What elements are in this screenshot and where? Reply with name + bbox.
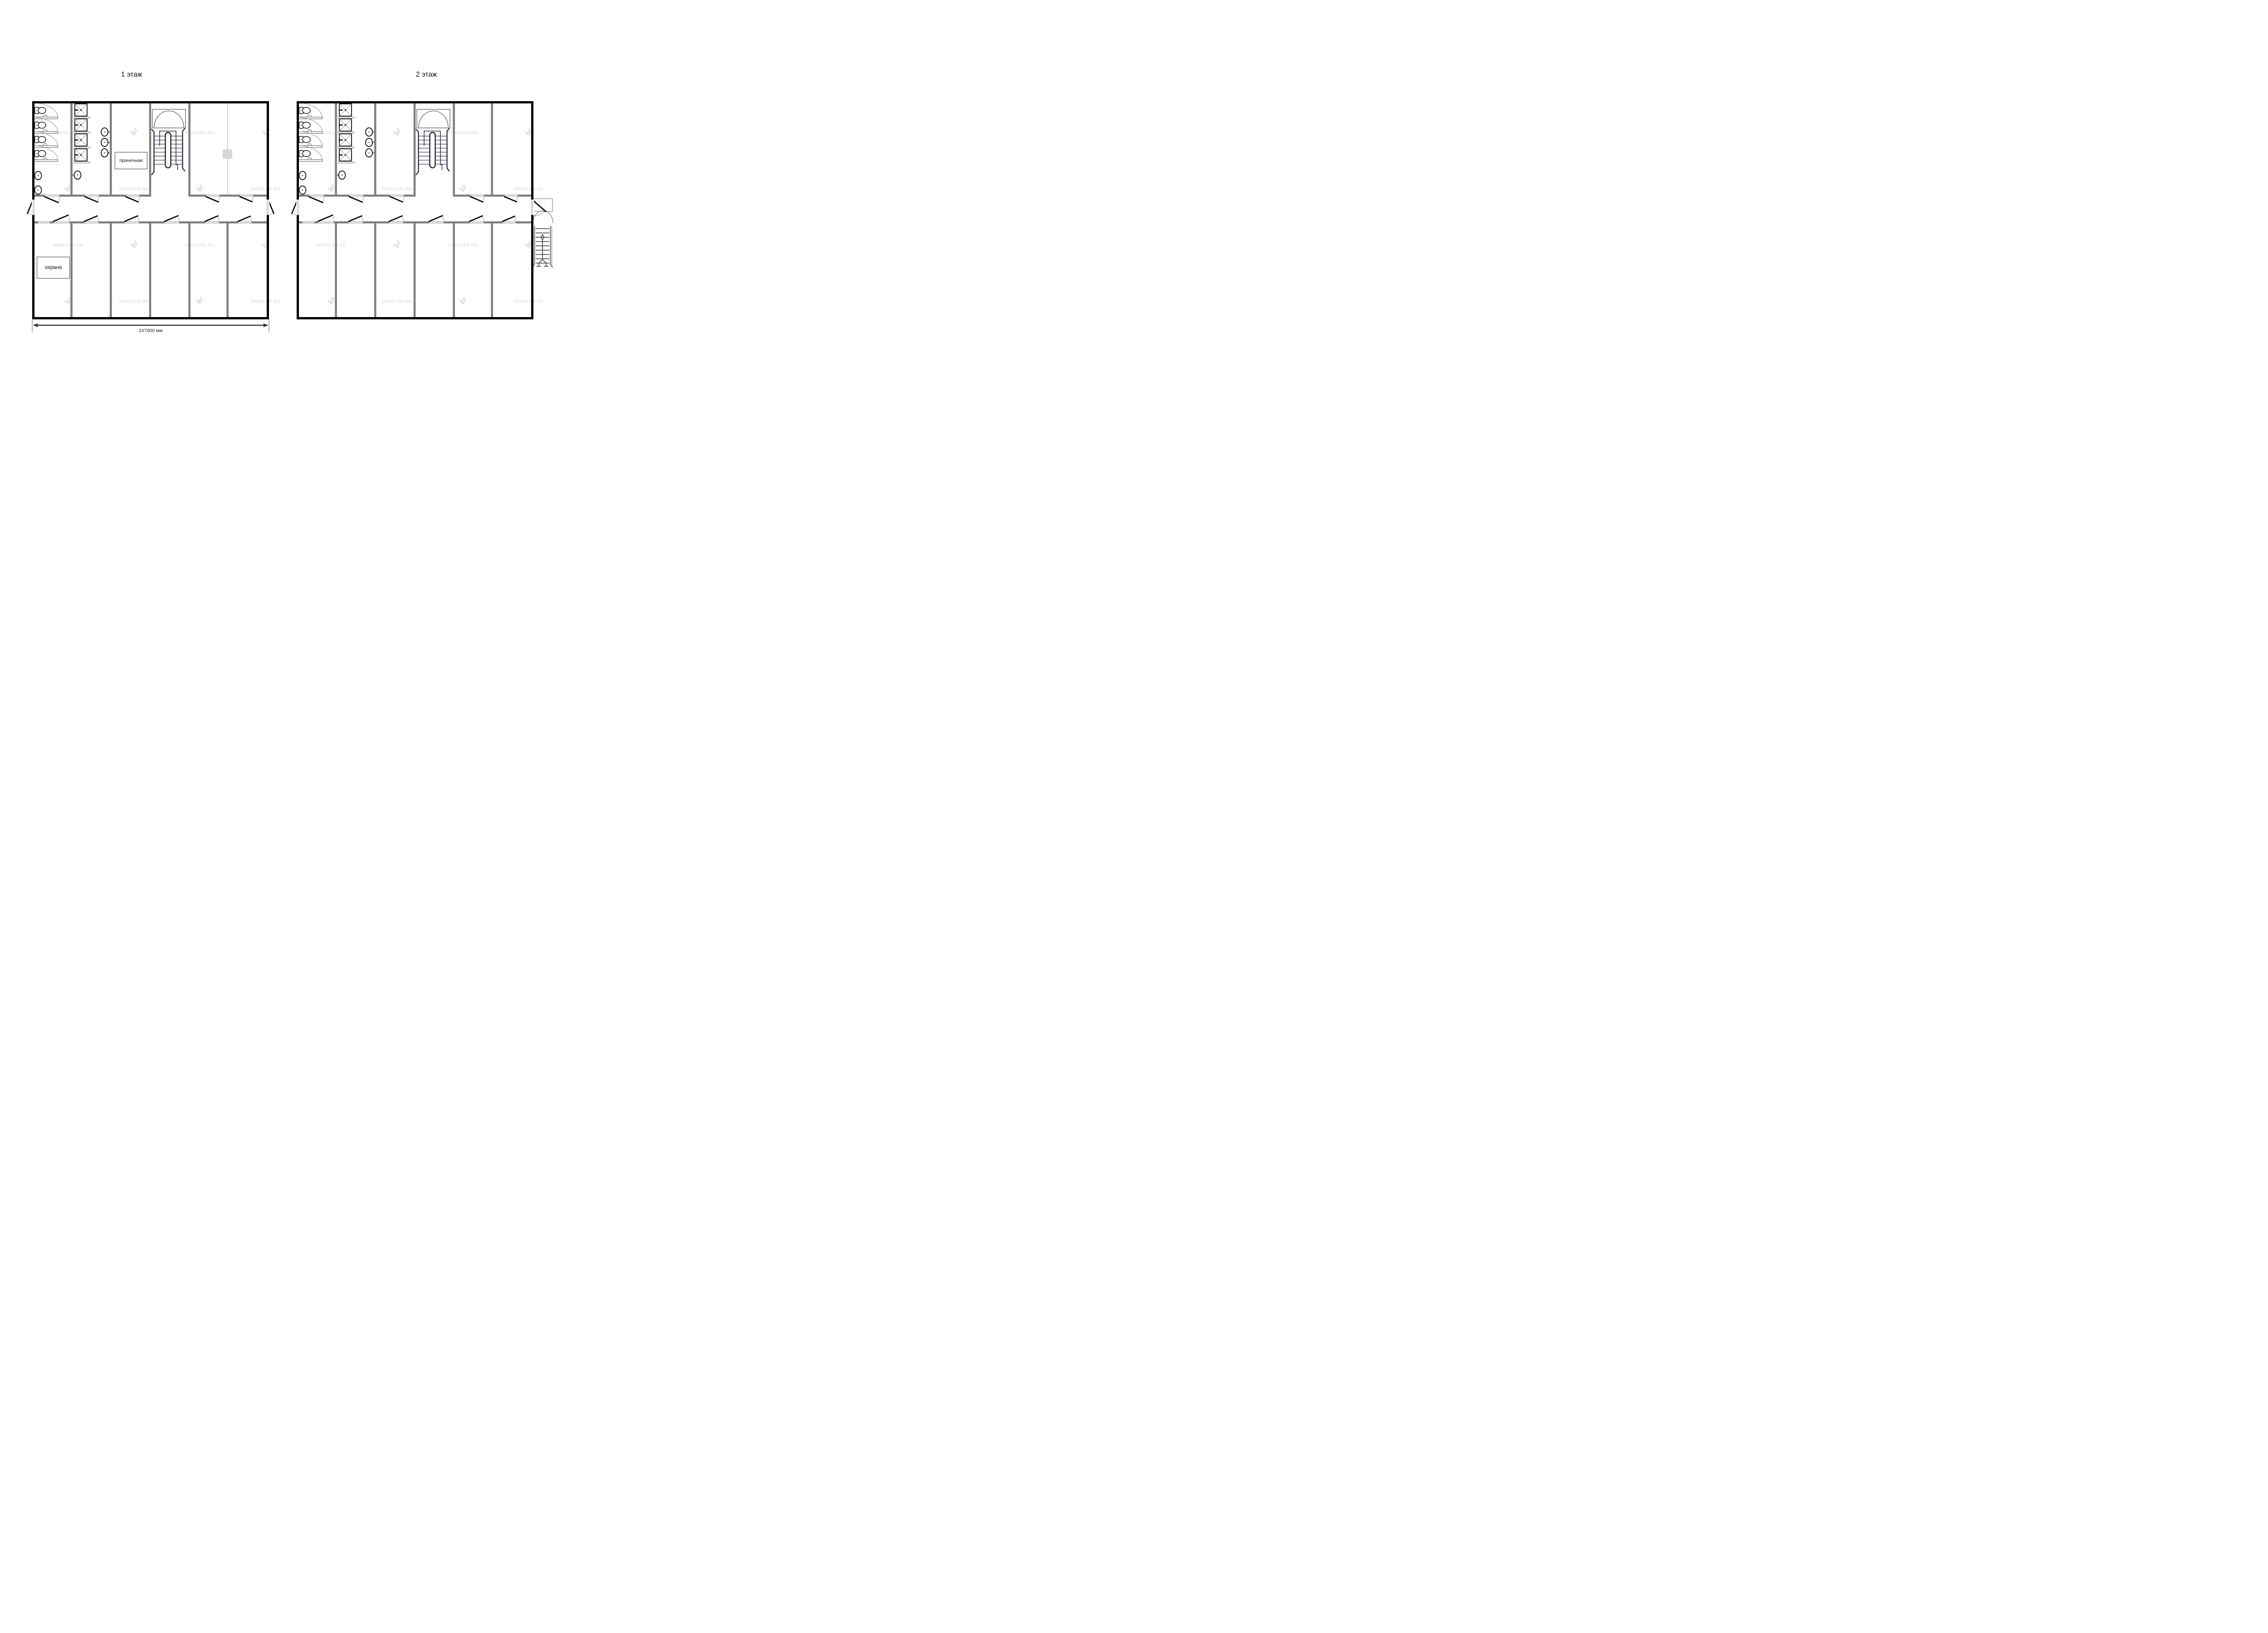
partition-detail [43, 130, 47, 132]
shower-dot [80, 109, 82, 111]
entrance-arch-box [417, 109, 450, 128]
corridor-wall [455, 195, 531, 197]
sink-drain [368, 142, 369, 143]
door-leaf [389, 216, 402, 221]
door-swing-arc [403, 197, 404, 202]
shower-dot [80, 154, 82, 156]
doors-layer [38, 194, 253, 224]
door-opening [503, 221, 516, 224]
shower-door-tick [74, 109, 78, 111]
wc-toilet [35, 122, 46, 128]
floor2-title: 2 этаж [395, 71, 458, 79]
sink [101, 128, 110, 136]
door-swing-arc [442, 216, 444, 221]
door-opening [470, 194, 484, 197]
door-opening [309, 194, 324, 197]
door-leaf [126, 197, 138, 202]
dimension-arrowhead [264, 323, 268, 327]
door-leaf [84, 216, 98, 221]
door-leaf [318, 215, 332, 221]
partition-detail [308, 158, 312, 160]
door-swing-arc [533, 211, 553, 223]
wc-bowl [38, 108, 46, 114]
ladder-rail-foot [551, 264, 553, 267]
sink-drain [104, 142, 105, 143]
door-opening [44, 194, 59, 197]
door-opening [469, 221, 484, 224]
sink-drain [104, 132, 105, 132]
door-swing-arc [252, 197, 253, 202]
shower-stall [72, 119, 90, 134]
door-leaf [429, 216, 442, 221]
shower-room-fixtures [72, 104, 110, 179]
wc-toilet [299, 151, 311, 157]
stair-rail-left [152, 129, 154, 175]
dimension-label: 147000 мм [123, 328, 178, 333]
shower-room-fixtures [337, 104, 374, 179]
stair-hall [417, 109, 450, 128]
shower-door-tick [339, 139, 343, 141]
door-swing-arc [98, 197, 99, 202]
wc-bowl [38, 122, 46, 128]
shower-door-tick [339, 154, 343, 156]
floor2-plan [276, 96, 555, 327]
partition-detail [308, 144, 312, 146]
wc-dot [36, 125, 37, 126]
shower-door-tick [339, 109, 343, 111]
interior-wall [110, 103, 112, 197]
wc-bowl [303, 137, 310, 143]
shower-threshold [337, 132, 355, 134]
sink [73, 171, 81, 179]
interior-wall [414, 103, 416, 197]
door-leaf [349, 197, 362, 202]
staircase [152, 128, 185, 175]
interior-wall [453, 103, 455, 197]
shower-stall [72, 134, 90, 149]
shower-threshold [337, 117, 355, 119]
door-opening [84, 221, 98, 224]
door-swing-arc [138, 216, 139, 221]
wc-toilet [35, 137, 46, 143]
door-leaf [470, 197, 483, 202]
shower-stall [72, 149, 90, 164]
staircase [416, 128, 450, 175]
interior-wall [149, 221, 152, 317]
shower-stall [337, 104, 355, 119]
shower-threshold [337, 161, 355, 164]
door-opening [33, 200, 35, 215]
stall-partition [34, 117, 58, 119]
thin-partition [227, 103, 228, 195]
sink-drain [368, 132, 369, 132]
stall-partition [299, 160, 323, 161]
sink-drain [342, 175, 342, 176]
shower-door-tick [74, 124, 78, 126]
door-swing-arc [98, 216, 98, 221]
door-opening [165, 221, 179, 224]
interior-wall [374, 221, 376, 317]
door-opening [389, 221, 403, 224]
door-opening [349, 194, 363, 197]
sink [366, 128, 374, 136]
door-leaf [238, 216, 250, 221]
door-leaf [54, 215, 68, 221]
shower-threshold [337, 147, 355, 149]
door-swing-arc [58, 197, 59, 203]
shower-door-tick [74, 139, 78, 141]
corridor-wall [191, 195, 267, 197]
stall-partition [34, 160, 58, 161]
door-opening [504, 194, 518, 197]
door-swing-arc [323, 197, 324, 203]
partition-detail [308, 115, 312, 117]
outer-wall-gaps [296, 200, 534, 215]
wall-opening [303, 221, 314, 224]
interior-wall [491, 103, 493, 197]
floor1-plan [12, 96, 290, 327]
stair-rail-right [183, 128, 185, 171]
interior-wall [70, 221, 73, 317]
shower-dot [345, 109, 347, 111]
door-opening [206, 194, 220, 197]
wc-dot [36, 110, 37, 111]
door-leaf [240, 197, 252, 202]
door-swing-arc [68, 215, 69, 221]
interior-wall [453, 221, 455, 317]
interior-wall [491, 221, 493, 317]
stall-partition [299, 117, 323, 119]
wc-bowl [303, 122, 310, 128]
door-leaf [125, 216, 138, 221]
door-swing-arc [138, 197, 139, 202]
door-swing-arc [332, 215, 334, 221]
walls-layer [299, 103, 531, 317]
door-leaf [390, 197, 403, 202]
wc-dot [301, 125, 302, 126]
wall-opening [38, 221, 50, 224]
interior-wall [335, 221, 337, 317]
shower-threshold [72, 147, 90, 149]
shower-stall [337, 149, 355, 164]
toilet-room-fixtures [298, 103, 323, 194]
interior-wall [110, 221, 112, 317]
door-opening [318, 221, 334, 224]
door-leaf [349, 216, 362, 221]
door-opening [205, 221, 219, 224]
partition-detail [308, 130, 312, 132]
door-leaf [206, 197, 219, 202]
door-opening [126, 194, 139, 197]
stair-hall [152, 109, 186, 128]
sink-drain [104, 152, 105, 153]
wc-toilet [299, 137, 311, 143]
sink-drain [368, 152, 369, 153]
wc-dot [301, 153, 302, 154]
door-opening [85, 194, 99, 197]
wc-toilet [35, 151, 46, 157]
wc-dot [301, 139, 302, 140]
wc-bowl [38, 137, 46, 143]
door-swing-arc [218, 216, 219, 221]
interior-wall [149, 103, 152, 197]
door-leaf [503, 216, 515, 221]
wc-dot [36, 139, 37, 140]
toilet-room-fixtures [33, 103, 58, 194]
door-swing-arc [515, 216, 516, 221]
door-swing-arc [362, 216, 363, 221]
partition-detail [43, 115, 47, 117]
doors-layer [303, 194, 518, 224]
sink-drain [38, 190, 39, 191]
shower-threshold [72, 161, 90, 164]
sink [366, 149, 374, 157]
dimension-arrowhead [33, 323, 38, 327]
door-opening [531, 200, 533, 215]
interior-wall [374, 103, 376, 197]
marker-square [223, 149, 232, 159]
outer-wall-gaps [32, 200, 269, 215]
wc-dot [301, 110, 302, 111]
door-swing-arc [362, 197, 363, 202]
interior-wall [188, 103, 191, 197]
stair-center-rail [430, 132, 435, 168]
door-leaf [165, 216, 178, 221]
shower-dot [345, 139, 347, 141]
door-opening [125, 221, 139, 224]
shower-stall [72, 104, 90, 119]
wc-dot [36, 153, 37, 154]
door-opening [54, 221, 69, 224]
sink-drain [38, 175, 39, 176]
wc-bowl [303, 151, 310, 157]
shower-door-tick [74, 154, 78, 156]
wc-toilet [35, 108, 46, 114]
shower-stall [337, 119, 355, 134]
door-swing-arc [402, 216, 403, 221]
stair-rail-right [447, 128, 450, 171]
sink [101, 149, 110, 157]
shower-stall [337, 134, 355, 149]
sink [101, 138, 110, 147]
door-opening [349, 221, 363, 224]
laundry-room-label: прачечная [115, 152, 147, 169]
door-opening [429, 221, 444, 224]
shower-dot [80, 124, 82, 126]
door-opening [390, 194, 404, 197]
dimension-line [0, 313, 577, 345]
sink-drain [302, 175, 303, 176]
sink [366, 138, 374, 147]
door-swing-arc [517, 197, 518, 202]
wc-bowl [38, 151, 46, 157]
floor1-title: 1 этаж [100, 71, 163, 79]
wc-bowl [303, 108, 310, 114]
door-leaf [309, 197, 323, 203]
exit-to-fire-escape [531, 199, 553, 223]
shower-dot [345, 154, 347, 156]
door-leaf [44, 197, 58, 203]
door-opening [240, 194, 253, 197]
door-leaf [469, 216, 483, 221]
stair-rail-left [416, 129, 419, 175]
page-canvas: 1 этаж 2 этаж SHEDLER.RUSHEDLER.RUSHEDLE… [0, 0, 577, 408]
sink [337, 171, 346, 179]
interior-wall [188, 221, 191, 317]
door-swing-arc [219, 197, 220, 202]
door-swing-arc [483, 197, 484, 202]
shower-door-tick [339, 124, 343, 126]
door-leaf [205, 216, 218, 221]
sink-drain [302, 190, 303, 191]
wc-toilet [299, 108, 311, 114]
partition-detail [43, 144, 47, 146]
shower-dot [345, 124, 347, 126]
interior-wall [414, 221, 416, 317]
shower-threshold [72, 117, 90, 119]
door-swing-arc [483, 216, 484, 221]
exit-landing [531, 199, 552, 211]
stair-center-rail [166, 132, 171, 168]
door-leaf [504, 197, 517, 202]
shower-dot [80, 139, 82, 141]
sink-drain [77, 175, 78, 176]
partition-detail [43, 158, 47, 160]
door-opening [267, 200, 269, 215]
entrance-arch-box [152, 109, 186, 128]
door-opening [238, 221, 251, 224]
door-leaf [85, 197, 98, 202]
wc-toilet [299, 122, 311, 128]
door-swing-arc [178, 216, 179, 221]
walls-layer [34, 103, 267, 317]
door-opening [297, 200, 299, 215]
security-room-label: охрана [37, 257, 70, 279]
interior-wall [226, 221, 229, 317]
shower-threshold [72, 132, 90, 134]
door-swing-arc [250, 216, 251, 221]
fire-escape-ladder [533, 226, 552, 267]
